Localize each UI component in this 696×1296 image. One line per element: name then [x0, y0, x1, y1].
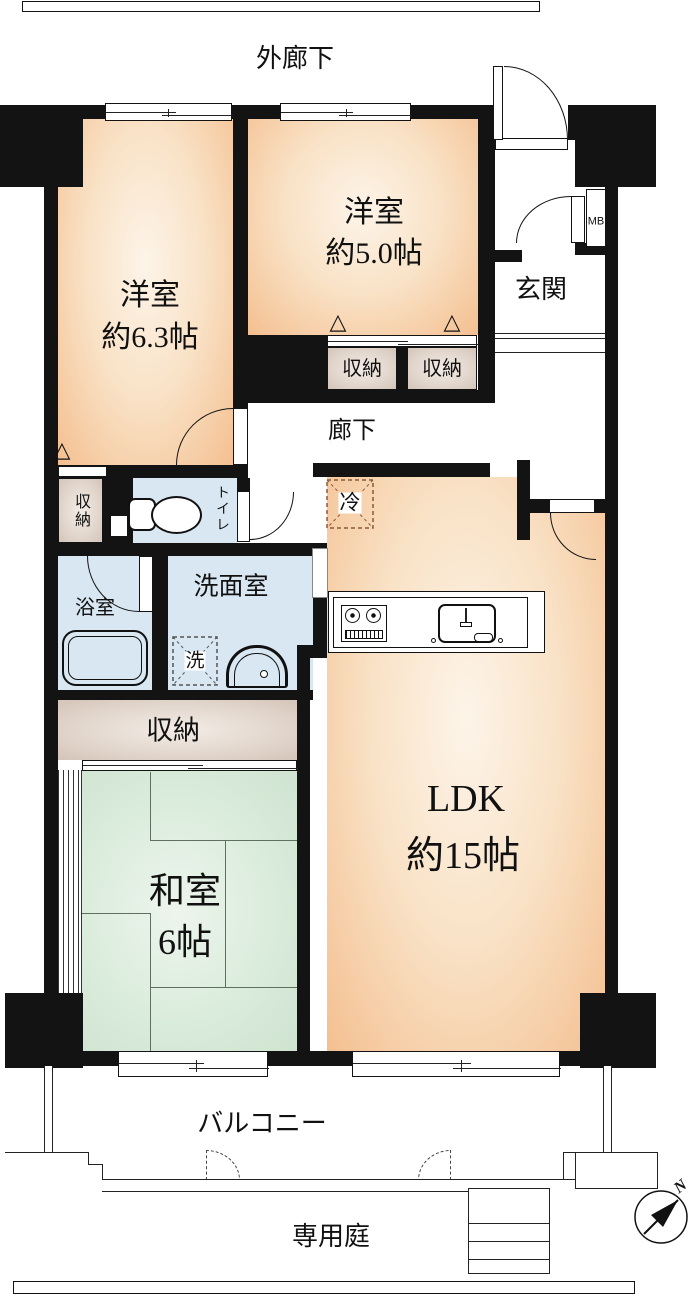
balcony-fence-right	[603, 1066, 612, 1152]
entrance-closet-leaf	[571, 196, 585, 243]
wall	[0, 105, 83, 187]
label-washer: 洗	[184, 652, 205, 671]
toilet-bowl	[151, 496, 202, 534]
balcony-edge	[563, 1152, 564, 1180]
label-washroom: 洗面室	[193, 575, 268, 600]
balcony-edge	[657, 1152, 658, 1189]
closet-large-slider	[82, 760, 297, 771]
garden-steps	[468, 1188, 550, 1274]
balcony-partition-swing	[206, 1150, 240, 1180]
tatami-line	[150, 987, 297, 988]
balcony-edge	[563, 1152, 658, 1153]
balcony-edge	[102, 1179, 576, 1180]
balcony-partition-swing	[418, 1150, 451, 1180]
label-private-garden: 専用庭	[292, 1224, 370, 1250]
label-exterior-corridor: 外廊下	[256, 46, 334, 72]
label-western1-name: 洋室	[120, 281, 180, 311]
bath-door-leaf	[139, 556, 153, 612]
triangle-marker: △	[444, 311, 461, 333]
closet-slider-western1	[58, 466, 107, 477]
wall	[397, 347, 407, 390]
label-refrigerator: 冷	[339, 493, 362, 514]
window-japanese	[118, 1051, 268, 1077]
front-door-swing	[504, 66, 568, 140]
washbasin-inner	[234, 653, 280, 688]
wall	[233, 105, 248, 408]
label-entrance: 玄関	[515, 277, 567, 303]
label-ldk-name: LDK	[427, 780, 505, 818]
front-door-leaf	[493, 66, 503, 140]
label-closet-b: 収納	[422, 359, 462, 379]
wall	[568, 119, 575, 140]
label-western2-name: 洋室	[344, 198, 404, 228]
balcony-edge	[88, 1164, 103, 1165]
tatami-line	[82, 913, 150, 914]
floor-plan: N △ △ △ 外廊下 洋室 約6.3帖 洋室 約5.0帖 玄関 MB 収納 収…	[0, 0, 696, 1296]
window-ldk	[352, 1051, 560, 1077]
ldk-corridor-notch	[530, 477, 605, 499]
balcony-fence-left	[44, 1066, 53, 1152]
garden-boundary	[13, 1281, 635, 1294]
western1-door-leaf	[233, 408, 248, 465]
triangle-marker: △	[54, 439, 71, 461]
tatami-line	[150, 913, 151, 1051]
wall	[297, 645, 310, 1051]
ldk-door-leaf	[549, 499, 595, 513]
wall	[495, 250, 522, 262]
label-balcony: バルコニー	[197, 1111, 326, 1137]
tatami-line	[150, 772, 151, 840]
toilet-door-swing	[250, 492, 294, 540]
toilet-door-leaf	[237, 491, 250, 542]
closet-door-notch	[111, 516, 127, 536]
entrance-closet-swing	[516, 196, 571, 243]
wall	[44, 119, 58, 1066]
exterior-corridor-railing	[22, 1, 540, 12]
wall	[152, 556, 168, 690]
wall	[233, 390, 495, 403]
balcony-edge	[5, 1152, 89, 1153]
label-meter-box: MB	[588, 217, 605, 228]
label-closet-large: 収納	[146, 718, 200, 745]
wall	[44, 690, 313, 700]
wall	[594, 499, 605, 513]
entrance-step-line	[495, 333, 605, 334]
label-western1-size: 約6.3帖	[101, 323, 199, 353]
faucet-base	[460, 622, 472, 627]
wall	[580, 993, 656, 1068]
washbasin-drain	[260, 670, 268, 678]
washroom-slider	[312, 548, 328, 598]
balcony-edge	[575, 1152, 576, 1189]
tatami-line	[150, 840, 297, 841]
label-japanese-name: 和室	[149, 873, 221, 909]
stove-burner	[345, 608, 360, 623]
balcony-edge	[102, 1164, 103, 1180]
label-closet-small: 収納	[72, 493, 88, 529]
sink-knob	[431, 638, 436, 643]
entrance-step-line	[495, 352, 605, 353]
closet-slider-western2	[327, 335, 477, 347]
wall	[44, 543, 327, 556]
wall	[530, 499, 550, 513]
sink-knob	[498, 638, 503, 643]
label-western2-size: 約5.0帖	[325, 239, 423, 269]
triangle-marker: △	[330, 311, 347, 333]
tatami-line	[225, 840, 226, 987]
window-western2	[280, 103, 411, 121]
wall	[517, 460, 530, 540]
label-hallway: 廊下	[328, 419, 376, 443]
wall	[605, 187, 618, 1066]
stove-burner	[366, 608, 381, 623]
label-japanese-size: 6帖	[158, 924, 212, 960]
entrance-step-line	[495, 338, 605, 339]
stove-grill	[345, 630, 383, 639]
wall	[313, 463, 490, 477]
wall	[478, 119, 495, 403]
label-toilet: トイレ	[214, 485, 228, 533]
label-bathroom: 浴室	[75, 598, 115, 618]
wall	[575, 105, 656, 187]
room-ldk	[327, 477, 605, 1053]
bathtub-inner	[68, 636, 142, 680]
sink-soap-tray	[474, 633, 493, 642]
window-western1	[105, 103, 232, 121]
balcony-edge	[102, 1191, 468, 1192]
label-ldk-size: 約15帖	[406, 837, 520, 875]
label-closet-a: 収納	[342, 359, 382, 379]
